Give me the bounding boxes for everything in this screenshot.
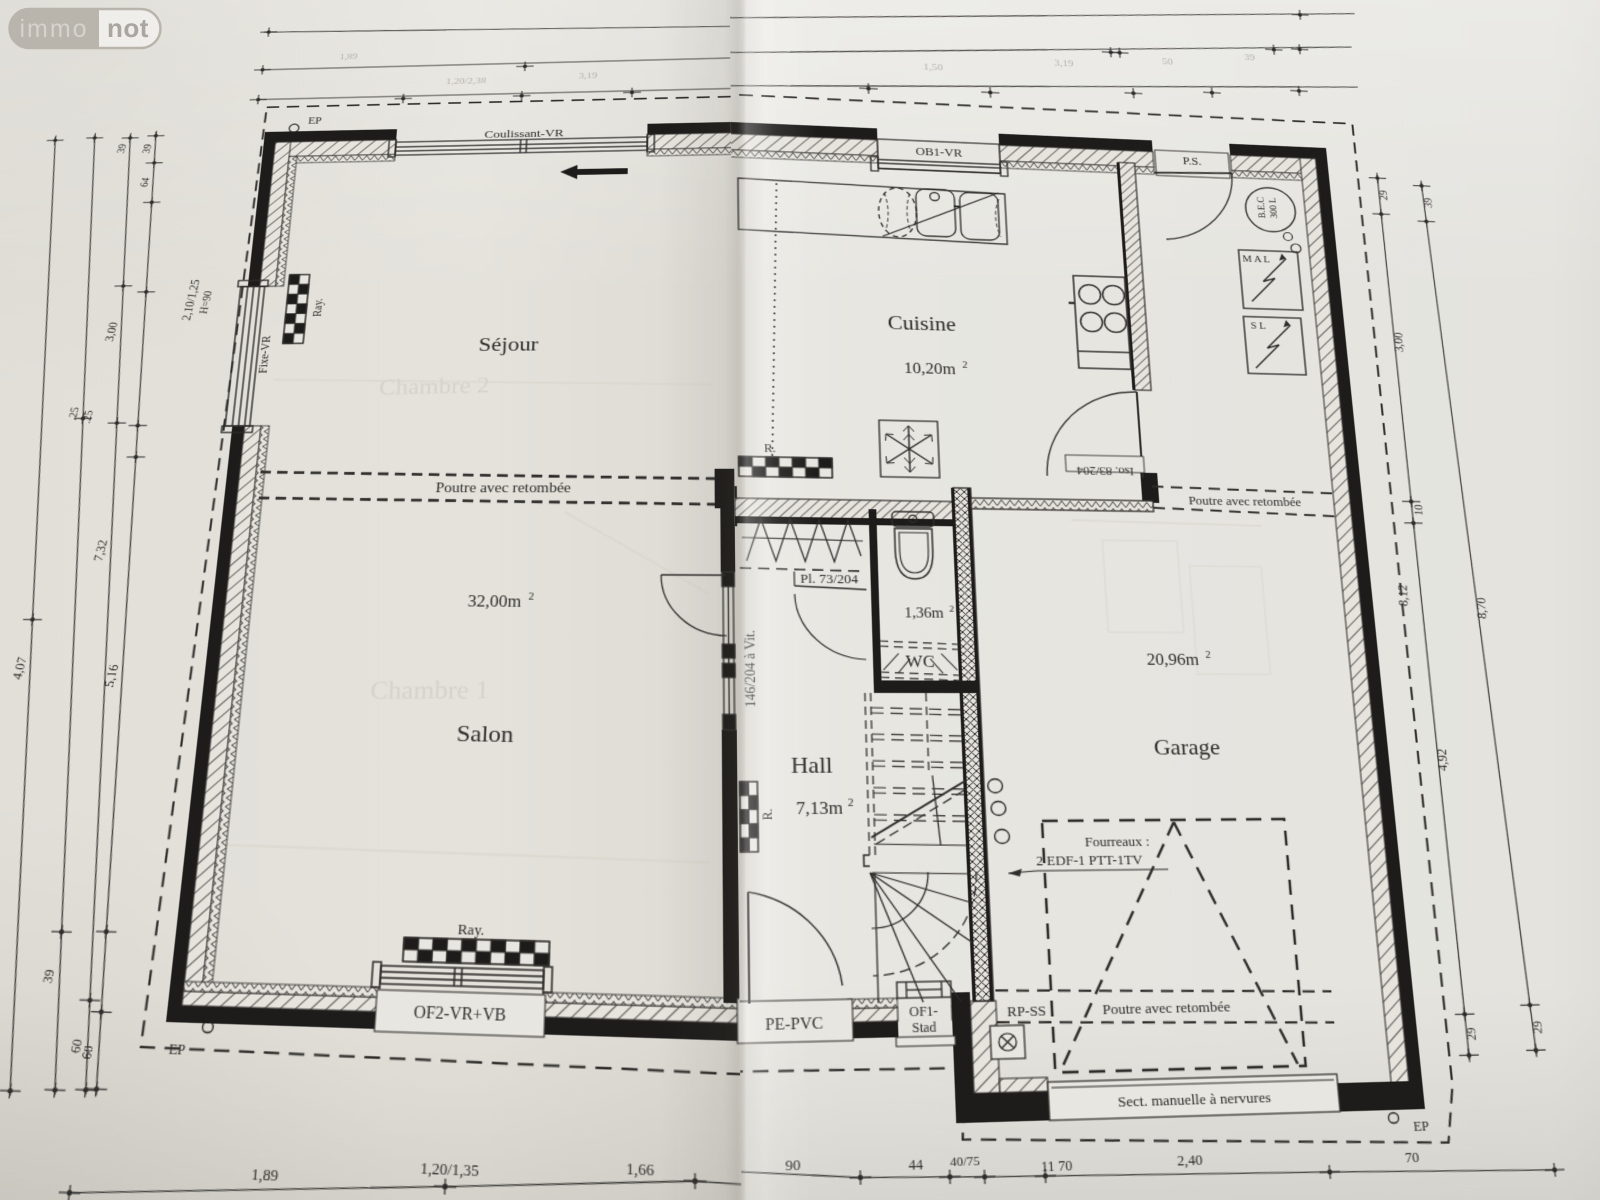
svg-text:not: not bbox=[107, 13, 149, 43]
svg-text:immo: immo bbox=[19, 15, 88, 43]
